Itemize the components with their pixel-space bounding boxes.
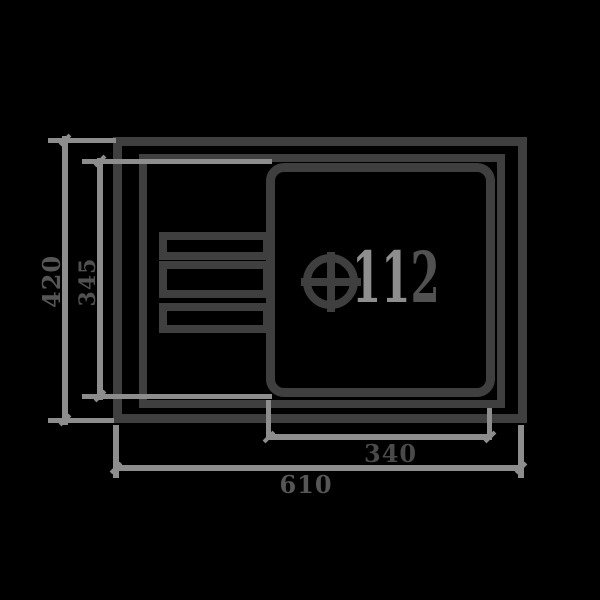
drainboard-groove <box>159 232 271 260</box>
drainboard-groove <box>159 303 271 333</box>
dim-bowl-depth-extension-bottom <box>82 394 272 399</box>
drain-diameter-label: 112 <box>352 250 440 306</box>
dim-overall-width-label: 610 <box>278 473 334 497</box>
dim-bowl-depth-extension-top <box>82 159 272 164</box>
dim-overall-depth-extension-bottom <box>48 418 114 423</box>
technical-drawing-canvas: 112 420 345 340 610 <box>0 0 600 600</box>
dimension-tick <box>484 431 497 444</box>
drain-diameter-label-part: 2 <box>410 236 439 319</box>
dim-bowl-depth-label: 345 <box>76 256 102 308</box>
drain-diameter-label-part: 11 <box>352 236 410 319</box>
drain-crosshair-vertical <box>327 252 335 312</box>
drainboard-groove <box>159 261 271 298</box>
dim-overall-depth-label: 420 <box>40 256 66 308</box>
dim-bowl-width-label: 340 <box>364 442 412 466</box>
